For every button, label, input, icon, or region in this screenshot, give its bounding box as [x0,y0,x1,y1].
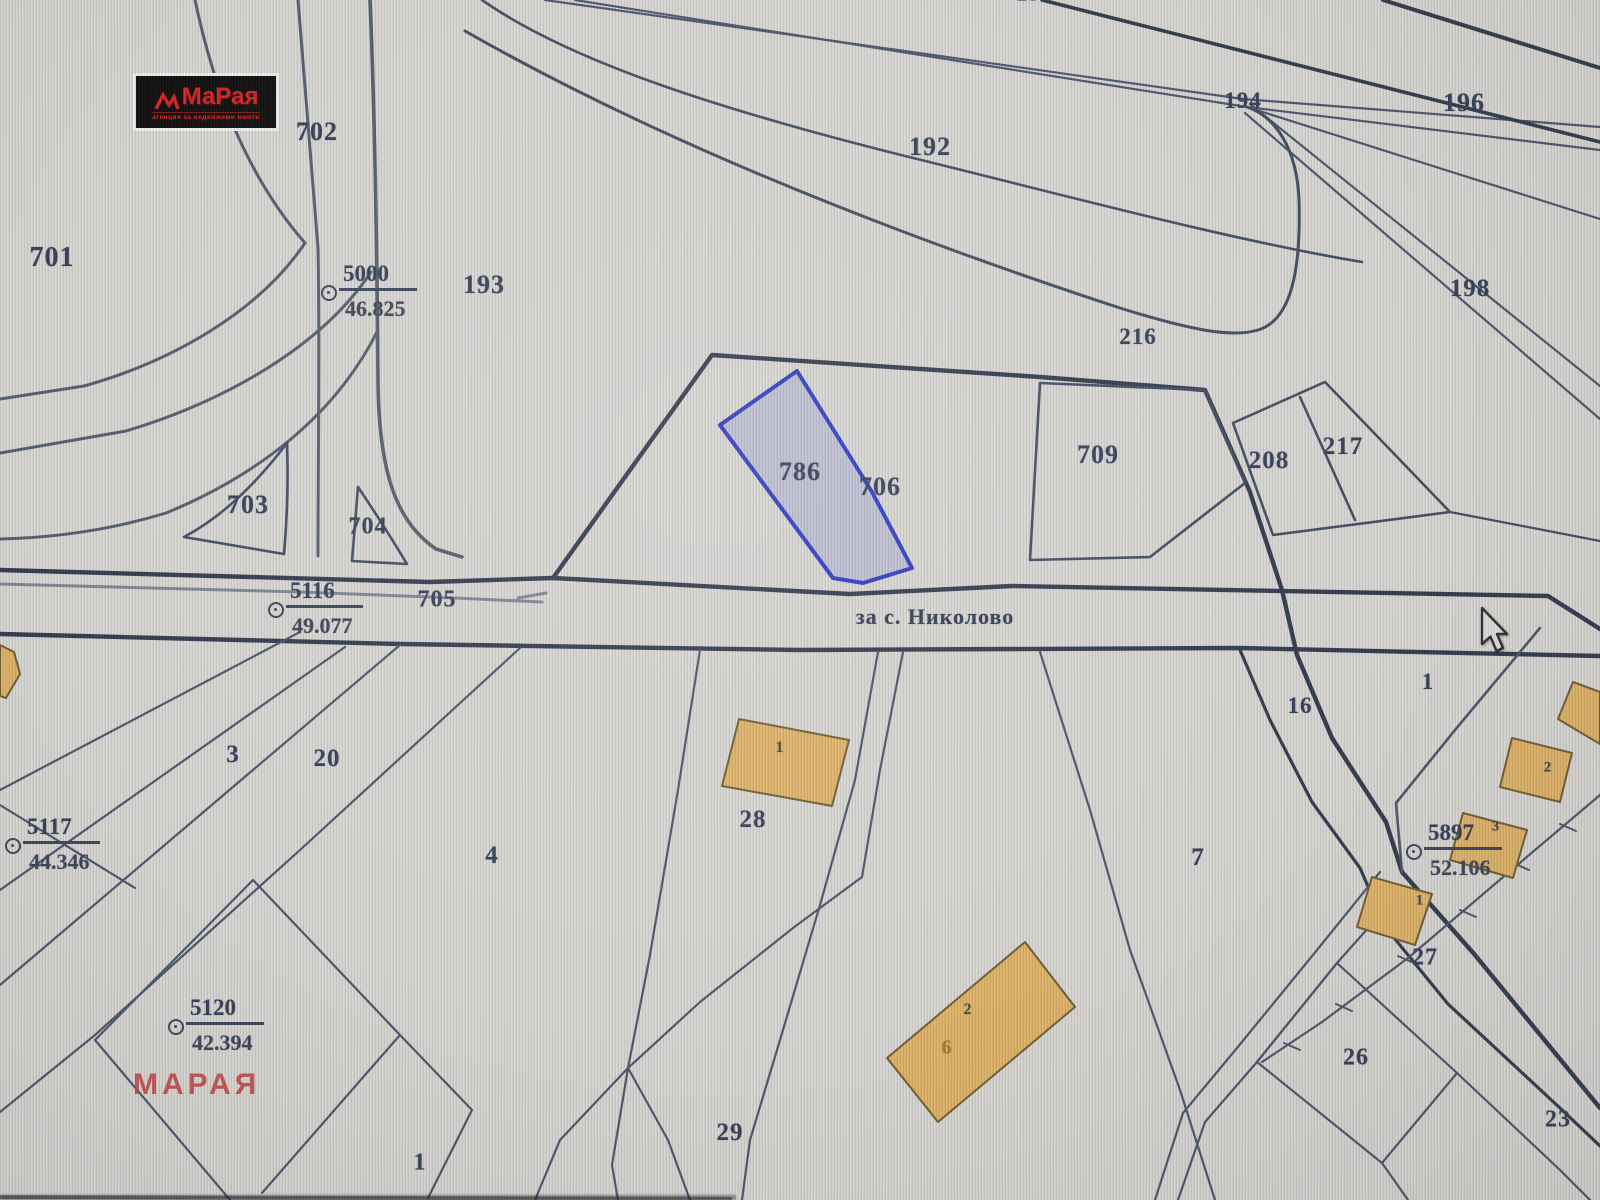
parcels-bottom-center [535,650,1215,1200]
cadastral-map-stage[interactable]: 1957027011931921941961982167867067092082… [0,0,1600,1200]
parcel-26-boundary [1257,963,1457,1163]
block-706-roads [553,355,1600,1146]
parcel-709-boundary [1030,383,1245,560]
building-right-3 [1450,813,1527,878]
parcel-786-highlight[interactable] [720,371,912,583]
photo-edge-shadow [0,1195,736,1200]
building-parcel28 [722,719,849,806]
road-curves-topleft [0,0,462,557]
building-left-edge [0,645,20,698]
main-road [0,570,1600,656]
parcel-704-boundary [352,487,407,564]
parcel-208-217-boundary [1233,382,1450,535]
roads-topright [465,0,1600,419]
building-right-1 [1357,877,1432,945]
building-right-edge [1558,682,1600,744]
buildings [0,645,1600,1122]
parcels-bottom-left [0,632,520,1200]
building-right-2 [1500,738,1572,802]
building-parcel6 [887,942,1075,1122]
map-linework[interactable] [0,0,1600,1200]
fence-line [1262,795,1600,1062]
